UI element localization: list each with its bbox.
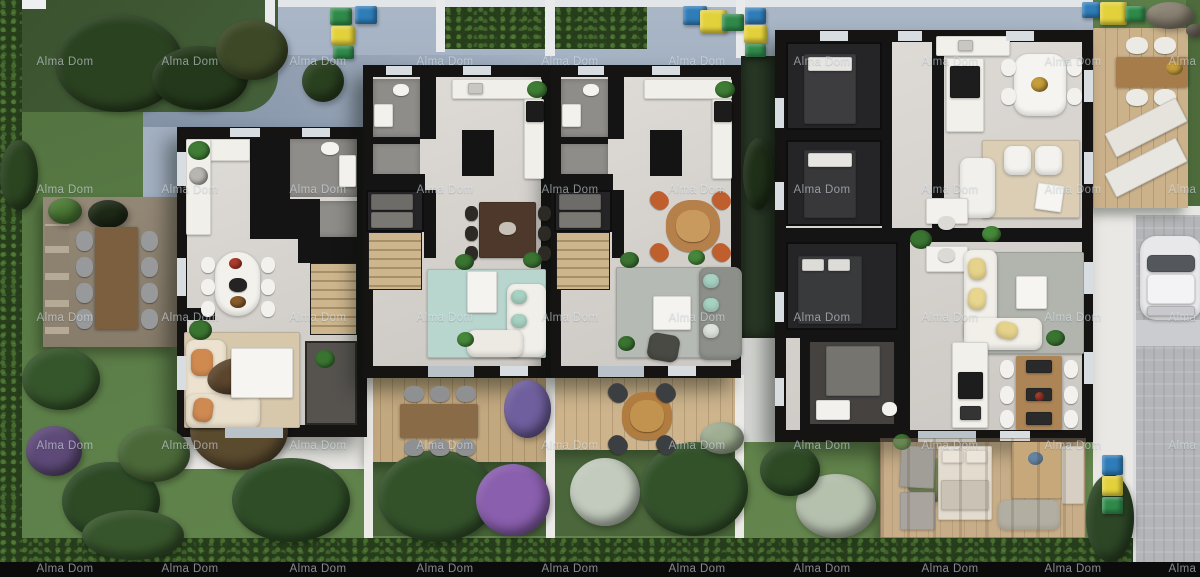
pergola-roof [880,438,1086,538]
overlays-layer [0,0,1200,577]
site-plan-render: Alma DomAlma DomAlma DomAlma DomAlma Dom… [0,0,1200,577]
bottom-watermark-bar [0,562,1200,577]
